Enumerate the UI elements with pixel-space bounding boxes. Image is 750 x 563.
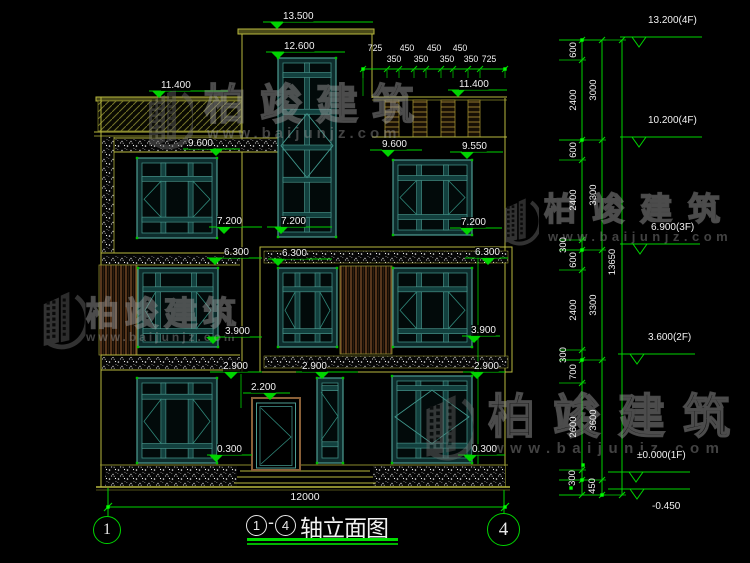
dimension-layer: [104, 22, 702, 516]
axis-bubble-1: 1: [93, 516, 121, 544]
title-underline-2: [247, 543, 398, 545]
axis-bubble-4: 4: [487, 513, 520, 546]
title-axis-start-bubble: 1: [246, 515, 267, 536]
entry-door: [252, 398, 300, 470]
title-underline: [247, 538, 398, 541]
drawing-title: 1-4轴立面图: [246, 509, 388, 543]
title-axis-end-bubble: 4: [275, 515, 296, 536]
cad-canvas: 柏竣建筑www.baijunjz.com 柏竣建筑www.baijunjz.co…: [0, 0, 750, 563]
title-dash: -: [268, 512, 274, 532]
elevation-drawing: [0, 0, 750, 563]
